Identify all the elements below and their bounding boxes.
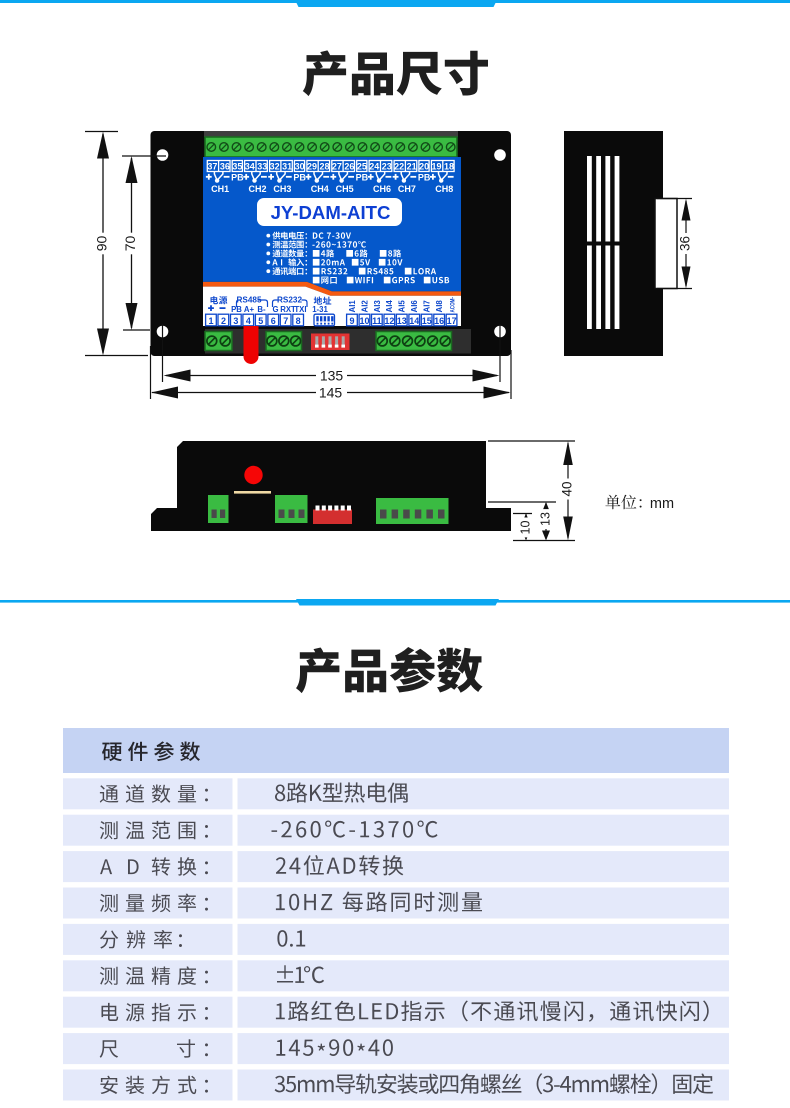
svg-text:CH2: CH2 [248,184,266,194]
svg-text:CH4: CH4 [311,184,329,194]
svg-text:mm: mm [650,496,674,512]
svg-text:AI2: AI2 [360,300,369,313]
svg-text:18: 18 [444,161,454,171]
svg-text:11: 11 [372,316,382,326]
svg-text:AI1: AI1 [348,300,357,313]
svg-text:13: 13 [538,512,552,526]
svg-text:17: 17 [447,316,457,326]
svg-text:22: 22 [394,161,404,171]
svg-text:AI5: AI5 [398,300,407,313]
svg-text:25: 25 [357,161,367,171]
svg-text:B-: B- [257,305,266,314]
svg-text:PB: PB [231,172,244,182]
svg-text:3: 3 [233,316,238,326]
svg-text:31: 31 [282,161,292,171]
svg-text:4: 4 [246,316,251,326]
svg-text:37: 37 [207,161,217,171]
svg-text:15: 15 [422,316,432,326]
svg-text:CH6: CH6 [373,184,391,194]
svg-text:145: 145 [319,385,343,401]
svg-text:36: 36 [220,161,230,171]
svg-text:14: 14 [409,316,419,326]
svg-text:16: 16 [434,316,444,326]
svg-text:32: 32 [270,161,280,171]
svg-text:PB: PB [293,172,306,182]
svg-text:36: 36 [678,236,693,251]
svg-text:RS232: RS232 [277,296,302,305]
svg-text:21: 21 [407,161,417,171]
svg-text:AI7: AI7 [423,300,432,313]
svg-text:12: 12 [384,316,394,326]
svg-text:34: 34 [245,161,255,171]
svg-text:27: 27 [332,161,342,171]
svg-text:35: 35 [232,161,242,171]
svg-text:135: 135 [320,368,344,384]
svg-text:33: 33 [257,161,267,171]
svg-text:CH1: CH1 [211,184,229,194]
svg-text:6: 6 [271,316,276,326]
svg-text:G: G [272,305,278,314]
svg-text:20: 20 [419,161,429,171]
svg-text:AI3: AI3 [373,300,382,313]
svg-text:10: 10 [518,521,532,535]
svg-text:29: 29 [307,161,317,171]
svg-text:70: 70 [122,236,138,252]
svg-text:26: 26 [344,161,354,171]
svg-text:PB: PB [418,172,431,182]
svg-text:AI6: AI6 [410,300,419,313]
svg-text:8: 8 [296,316,301,326]
svg-text:AI8: AI8 [435,300,444,313]
svg-text:19: 19 [432,161,442,171]
svg-text:90: 90 [94,236,110,252]
svg-text:A+: A+ [244,305,255,314]
svg-text:1: 1 [208,316,213,326]
svg-text:5: 5 [258,316,263,326]
svg-text:28: 28 [319,161,329,171]
svg-text:1-31: 1-31 [312,305,328,314]
svg-text:7: 7 [283,316,288,326]
svg-text:10: 10 [359,316,369,326]
svg-text:2: 2 [221,316,226,326]
svg-text:CH8: CH8 [435,184,453,194]
svg-text:CH5: CH5 [336,184,354,194]
svg-text:30: 30 [295,161,305,171]
svg-text:CH3: CH3 [273,184,291,194]
svg-text:9: 9 [349,316,354,326]
svg-text:40: 40 [560,481,575,496]
svg-text:24: 24 [369,161,379,171]
svg-text:13: 13 [397,316,407,326]
svg-text:AI4: AI4 [385,300,394,313]
svg-text:23: 23 [382,161,392,171]
svg-text:PB: PB [356,172,369,182]
svg-text:ACOM-: ACOM- [450,297,457,312]
svg-text:CH7: CH7 [398,184,416,194]
svg-text:TXI: TXI [294,305,306,314]
svg-text:JY-DAM-AITC: JY-DAM-AITC [271,202,391,223]
